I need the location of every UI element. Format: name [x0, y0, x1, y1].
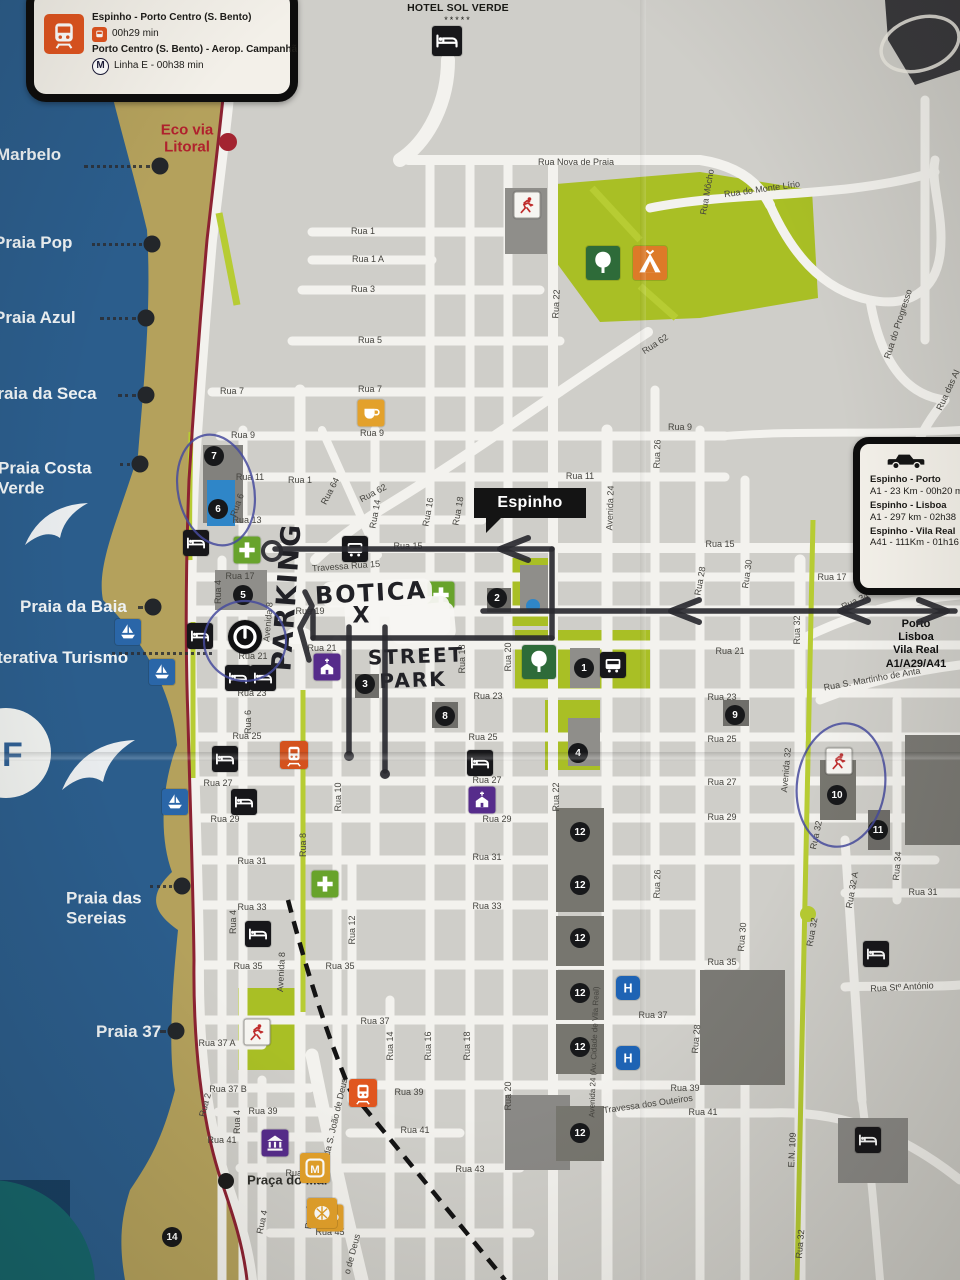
- pen-circle: [789, 717, 893, 852]
- pen-circle: [874, 7, 960, 81]
- route-end: [380, 769, 390, 779]
- transit-route-1: Espinho - Porto Centro (S. Bento): [92, 12, 297, 25]
- transit-time-1: 00h29 min: [112, 28, 159, 41]
- hand-drawn-route: [0, 0, 960, 1280]
- car-icon: [884, 450, 960, 472]
- transit-time-2: Linha E - 00h38 min: [114, 60, 204, 73]
- map-photo: F HOTEL SOL VERDE ***** Espinho Porto Li…: [0, 0, 960, 1280]
- pen-circle: [167, 427, 265, 552]
- driving-route: Espinho - Porto: [870, 474, 960, 486]
- driving-legend: Espinho - PortoA1 - 23 Km - 00h20 mEspin…: [853, 437, 960, 595]
- train-small-icon: [92, 27, 107, 42]
- pen-circle: [204, 601, 286, 681]
- driving-detail: A41 - 111Km - 01h16 m: [870, 537, 960, 549]
- transit-route-2: Porto Centro (S. Bento) - Aerop. Campanh…: [92, 44, 297, 57]
- driving-route: Espinho - Lisboa: [870, 500, 960, 512]
- train-icon: [44, 14, 84, 54]
- route-end: [344, 751, 354, 761]
- driving-route: Espinho - Vila Real: [870, 526, 960, 538]
- route-stroke: [300, 592, 312, 660]
- metro-icon: M: [92, 58, 109, 75]
- driving-rows: Espinho - PortoA1 - 23 Km - 00h20 mEspin…: [870, 474, 960, 549]
- transit-legend: Espinho - Porto Centro (S. Bento) 00h29 …: [26, 0, 298, 102]
- driving-detail: A1 - 297 km - 02h38: [870, 512, 960, 524]
- driving-detail: A1 - 23 Km - 00h20 m: [870, 486, 960, 498]
